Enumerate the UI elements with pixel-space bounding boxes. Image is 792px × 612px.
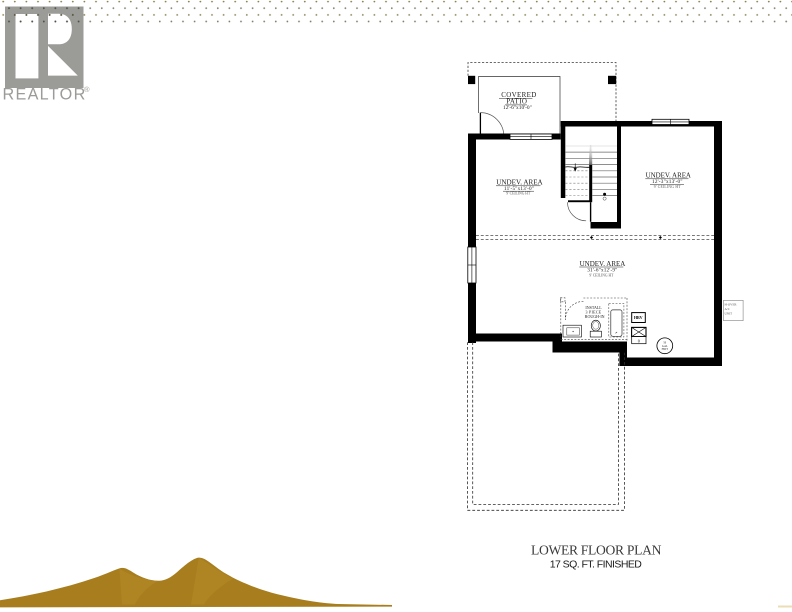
- svg-text:H-OVER: H-OVER: [725, 302, 738, 306]
- svg-text:REALTOR: REALTOR: [3, 86, 87, 104]
- svg-text:A/C: A/C: [725, 307, 730, 311]
- svg-text:LOWER FLOOR PLAN: LOWER FLOOR PLAN: [531, 542, 662, 557]
- svg-text:HWT: HWT: [662, 348, 669, 351]
- svg-text:HRV: HRV: [634, 316, 643, 320]
- svg-text:ROUGH-IN: ROUGH-IN: [585, 314, 605, 319]
- svg-text:17 SQ. FT. FINISHED: 17 SQ. FT. FINISHED: [550, 558, 643, 570]
- svg-text:9' CEILING HT: 9' CEILING HT: [654, 185, 682, 189]
- svg-text:®: ®: [84, 85, 90, 94]
- svg-text:9' CEILING HT: 9' CEILING HT: [589, 274, 614, 278]
- svg-text:31'-6"x12'-9": 31'-6"x12'-9": [587, 267, 617, 273]
- svg-text:12'-6"x10'-0": 12'-6"x10'-0": [503, 105, 532, 111]
- svg-text:UNIT: UNIT: [725, 311, 733, 315]
- svg-text:0: 0: [638, 339, 640, 344]
- svg-text:9' CEILING HT: 9' CEILING HT: [506, 192, 531, 196]
